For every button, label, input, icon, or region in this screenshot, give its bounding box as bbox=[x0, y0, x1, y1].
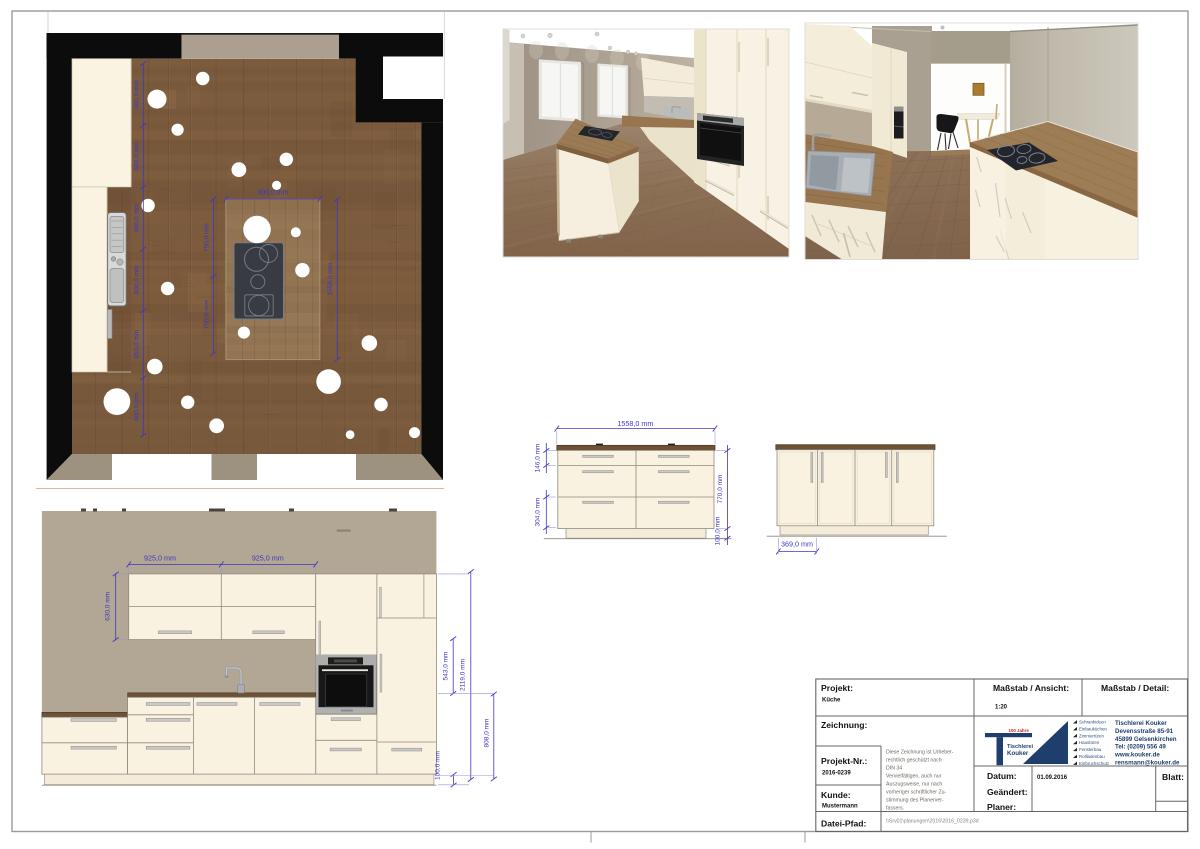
svg-text:\\Srv01\planungen\2016\2016_02: \\Srv01\planungen\2016\2016_0239.p3d bbox=[886, 819, 979, 825]
svg-text:600,0 mm: 600,0 mm bbox=[134, 142, 141, 171]
svg-text:Einbruchschutz: Einbruchschutz bbox=[1079, 761, 1109, 766]
svg-text:Vervielfältigen, auch nur: Vervielfältigen, auch nur bbox=[886, 774, 942, 780]
svg-text:Datei-Pfad:: Datei-Pfad: bbox=[821, 819, 866, 829]
svg-text:rechtlich geschützt nach: rechtlich geschützt nach bbox=[886, 758, 942, 764]
svg-text:750,0 mm: 750,0 mm bbox=[203, 300, 210, 329]
svg-text:770,0 mm: 770,0 mm bbox=[717, 475, 724, 504]
svg-text:925,0 mm: 925,0 mm bbox=[144, 554, 176, 563]
svg-text:Zeichnung:: Zeichnung: bbox=[821, 720, 867, 730]
svg-text:Diese Zeichnung ist Urheber-: Diese Zeichnung ist Urheber- bbox=[886, 750, 954, 756]
svg-text:100 Jahre: 100 Jahre bbox=[1009, 728, 1030, 733]
svg-text:600,0 mm: 600,0 mm bbox=[134, 392, 141, 421]
svg-text:750,0 mm: 750,0 mm bbox=[203, 223, 210, 252]
svg-text:Rollladenbau: Rollladenbau bbox=[1079, 754, 1105, 759]
svg-text:925,0 mm: 925,0 mm bbox=[252, 554, 284, 563]
svg-text:2119,0 mm: 2119,0 mm bbox=[460, 659, 467, 691]
svg-text:Projekt:: Projekt: bbox=[821, 683, 853, 693]
svg-text:fassers.: fassers. bbox=[886, 806, 904, 812]
svg-text:Zimmertüren: Zimmertüren bbox=[1079, 733, 1104, 738]
svg-text:Geändert:: Geändert: bbox=[987, 787, 1028, 797]
svg-text:1:20: 1:20 bbox=[995, 705, 1008, 711]
svg-text:Kunde:: Kunde: bbox=[821, 790, 851, 800]
svg-text:Schrankideen: Schrankideen bbox=[1079, 720, 1106, 725]
svg-text:Blatt:: Blatt: bbox=[1162, 772, 1184, 782]
svg-text:www.kouker.de: www.kouker.de bbox=[1114, 752, 1160, 759]
svg-text:Küche: Küche bbox=[822, 698, 841, 704]
svg-text:Auszugsweise, nur nach: Auszugsweise, nur nach bbox=[886, 782, 942, 788]
svg-text:304,0 mm: 304,0 mm bbox=[535, 498, 542, 527]
svg-text:stimmung des Planerver-: stimmung des Planerver- bbox=[886, 798, 944, 804]
svg-text:100,0 mm: 100,0 mm bbox=[715, 517, 722, 546]
svg-text:Tel: (0209) 556 49: Tel: (0209) 556 49 bbox=[1115, 744, 1166, 751]
svg-text:543,0 mm: 543,0 mm bbox=[443, 652, 450, 681]
svg-text:Fensterbau: Fensterbau bbox=[1079, 747, 1102, 752]
svg-text:1558,0 mm: 1558,0 mm bbox=[617, 419, 653, 428]
svg-text:Devensstraße 85-91: Devensstraße 85-91 bbox=[1115, 728, 1174, 735]
svg-text:600,0 mm: 600,0 mm bbox=[134, 80, 141, 109]
svg-text:Projekt-Nr.:: Projekt-Nr.: bbox=[821, 756, 867, 766]
svg-text:600,0 mm: 600,0 mm bbox=[134, 204, 141, 233]
svg-text:2016-0239: 2016-0239 bbox=[822, 771, 851, 777]
svg-text:650,0 mm: 650,0 mm bbox=[133, 330, 140, 359]
svg-text:Kouker: Kouker bbox=[1007, 750, 1029, 757]
svg-text:01.09.2016: 01.09.2016 bbox=[1037, 775, 1068, 781]
svg-text:1558,0 mm: 1558,0 mm bbox=[327, 263, 334, 296]
svg-text:Tischlerei Kouker: Tischlerei Kouker bbox=[1115, 720, 1167, 727]
svg-text:369,0 mm: 369,0 mm bbox=[781, 540, 813, 549]
svg-text:rensmann@kouker.de: rensmann@kouker.de bbox=[1115, 760, 1180, 767]
svg-text:900,0 mm: 900,0 mm bbox=[257, 190, 288, 197]
svg-text:DIN 34: DIN 34 bbox=[886, 766, 902, 772]
svg-text:808,0 mm: 808,0 mm bbox=[484, 719, 491, 748]
svg-text:Planer:: Planer: bbox=[987, 802, 1016, 812]
svg-text:600,0 mm: 600,0 mm bbox=[134, 265, 141, 294]
svg-text:45899 Gelsenkirchen: 45899 Gelsenkirchen bbox=[1115, 736, 1177, 743]
svg-text:Haustüren: Haustüren bbox=[1079, 740, 1100, 745]
svg-text:Maßstab / Detail:: Maßstab / Detail: bbox=[1101, 683, 1169, 693]
svg-text:vorheriger schriftlicher Zu-: vorheriger schriftlicher Zu- bbox=[886, 790, 947, 796]
svg-text:Mustermann: Mustermann bbox=[822, 804, 858, 810]
svg-text:Einbauküchen: Einbauküchen bbox=[1079, 726, 1107, 731]
svg-text:Maßstab / Ansicht:: Maßstab / Ansicht: bbox=[993, 683, 1069, 693]
svg-text:146,0 mm: 146,0 mm bbox=[535, 444, 542, 473]
svg-text:630,0 mm: 630,0 mm bbox=[105, 592, 112, 621]
svg-text:Datum:: Datum: bbox=[987, 771, 1017, 781]
